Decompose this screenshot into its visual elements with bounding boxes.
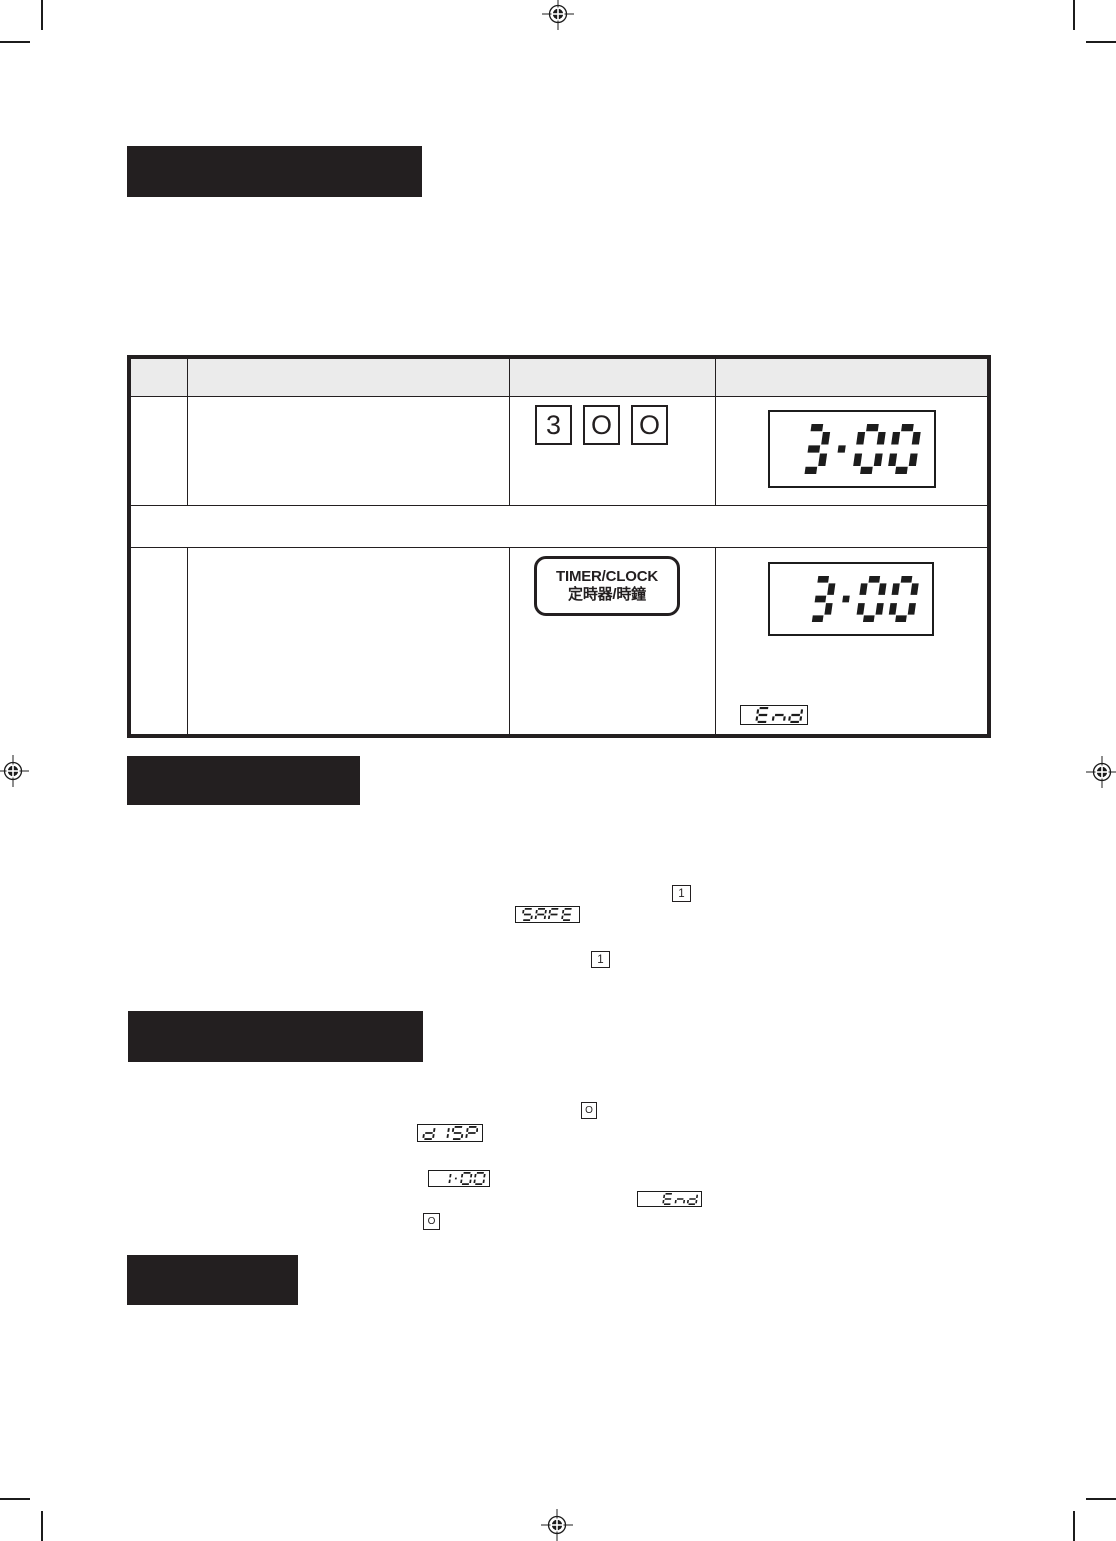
display-safe: [515, 906, 580, 923]
step2-number-cell: [131, 548, 188, 735]
display-clock-3-00: [768, 410, 936, 488]
registration-mark-icon: [0, 755, 29, 787]
key-3-button: 3: [535, 405, 572, 445]
crop-mark: [0, 41, 30, 43]
timer-clock-button: TIMER/CLOCK 定時器/時鐘: [534, 556, 680, 616]
crop-mark: [0, 1498, 30, 1500]
step1-description-cell: [188, 397, 511, 506]
section-header-bar: [127, 146, 422, 197]
dial-key-icon: O: [631, 405, 668, 445]
timer-clock-label-en: TIMER/CLOCK: [556, 568, 658, 586]
display-disp: [417, 1124, 483, 1142]
crop-mark: [1086, 41, 1116, 43]
step2-description-cell: [188, 548, 511, 735]
key-1-button: 1: [591, 951, 610, 968]
section-header-bar: [127, 756, 360, 805]
manual-page: 3 O O TIMER/CLOCK 定時器/時鐘 1 1 O O: [0, 0, 1116, 1541]
header-cell-display: [716, 359, 988, 396]
section-header-bar: [127, 1255, 298, 1305]
display-1-00: [428, 1170, 490, 1187]
display-clock-3-00: [768, 562, 934, 636]
dial-key-icon: O: [581, 1102, 597, 1119]
display-end: [637, 1191, 702, 1207]
header-cell-button: [510, 359, 716, 396]
registration-mark-icon: [1086, 756, 1116, 788]
key-1-button: 1: [672, 885, 691, 902]
dial-key-icon: O: [423, 1213, 440, 1230]
header-cell-step: [131, 359, 188, 396]
crop-mark: [41, 1511, 43, 1541]
table-note-row: [131, 506, 987, 548]
crop-mark: [1086, 1498, 1116, 1500]
note-cell: [131, 506, 987, 547]
dial-key-icon: O: [583, 405, 620, 445]
table-header-row: [131, 359, 987, 397]
crop-mark: [1073, 1511, 1075, 1541]
step1-number-cell: [131, 397, 188, 506]
registration-mark-icon: [542, 0, 574, 30]
display-end: [740, 705, 808, 725]
section-header-bar: [128, 1011, 423, 1062]
crop-mark: [41, 0, 43, 30]
registration-mark-icon: [541, 1509, 573, 1541]
crop-mark: [1073, 0, 1075, 30]
header-cell-description: [188, 359, 511, 396]
timer-clock-label-zh: 定時器/時鐘: [568, 586, 646, 604]
